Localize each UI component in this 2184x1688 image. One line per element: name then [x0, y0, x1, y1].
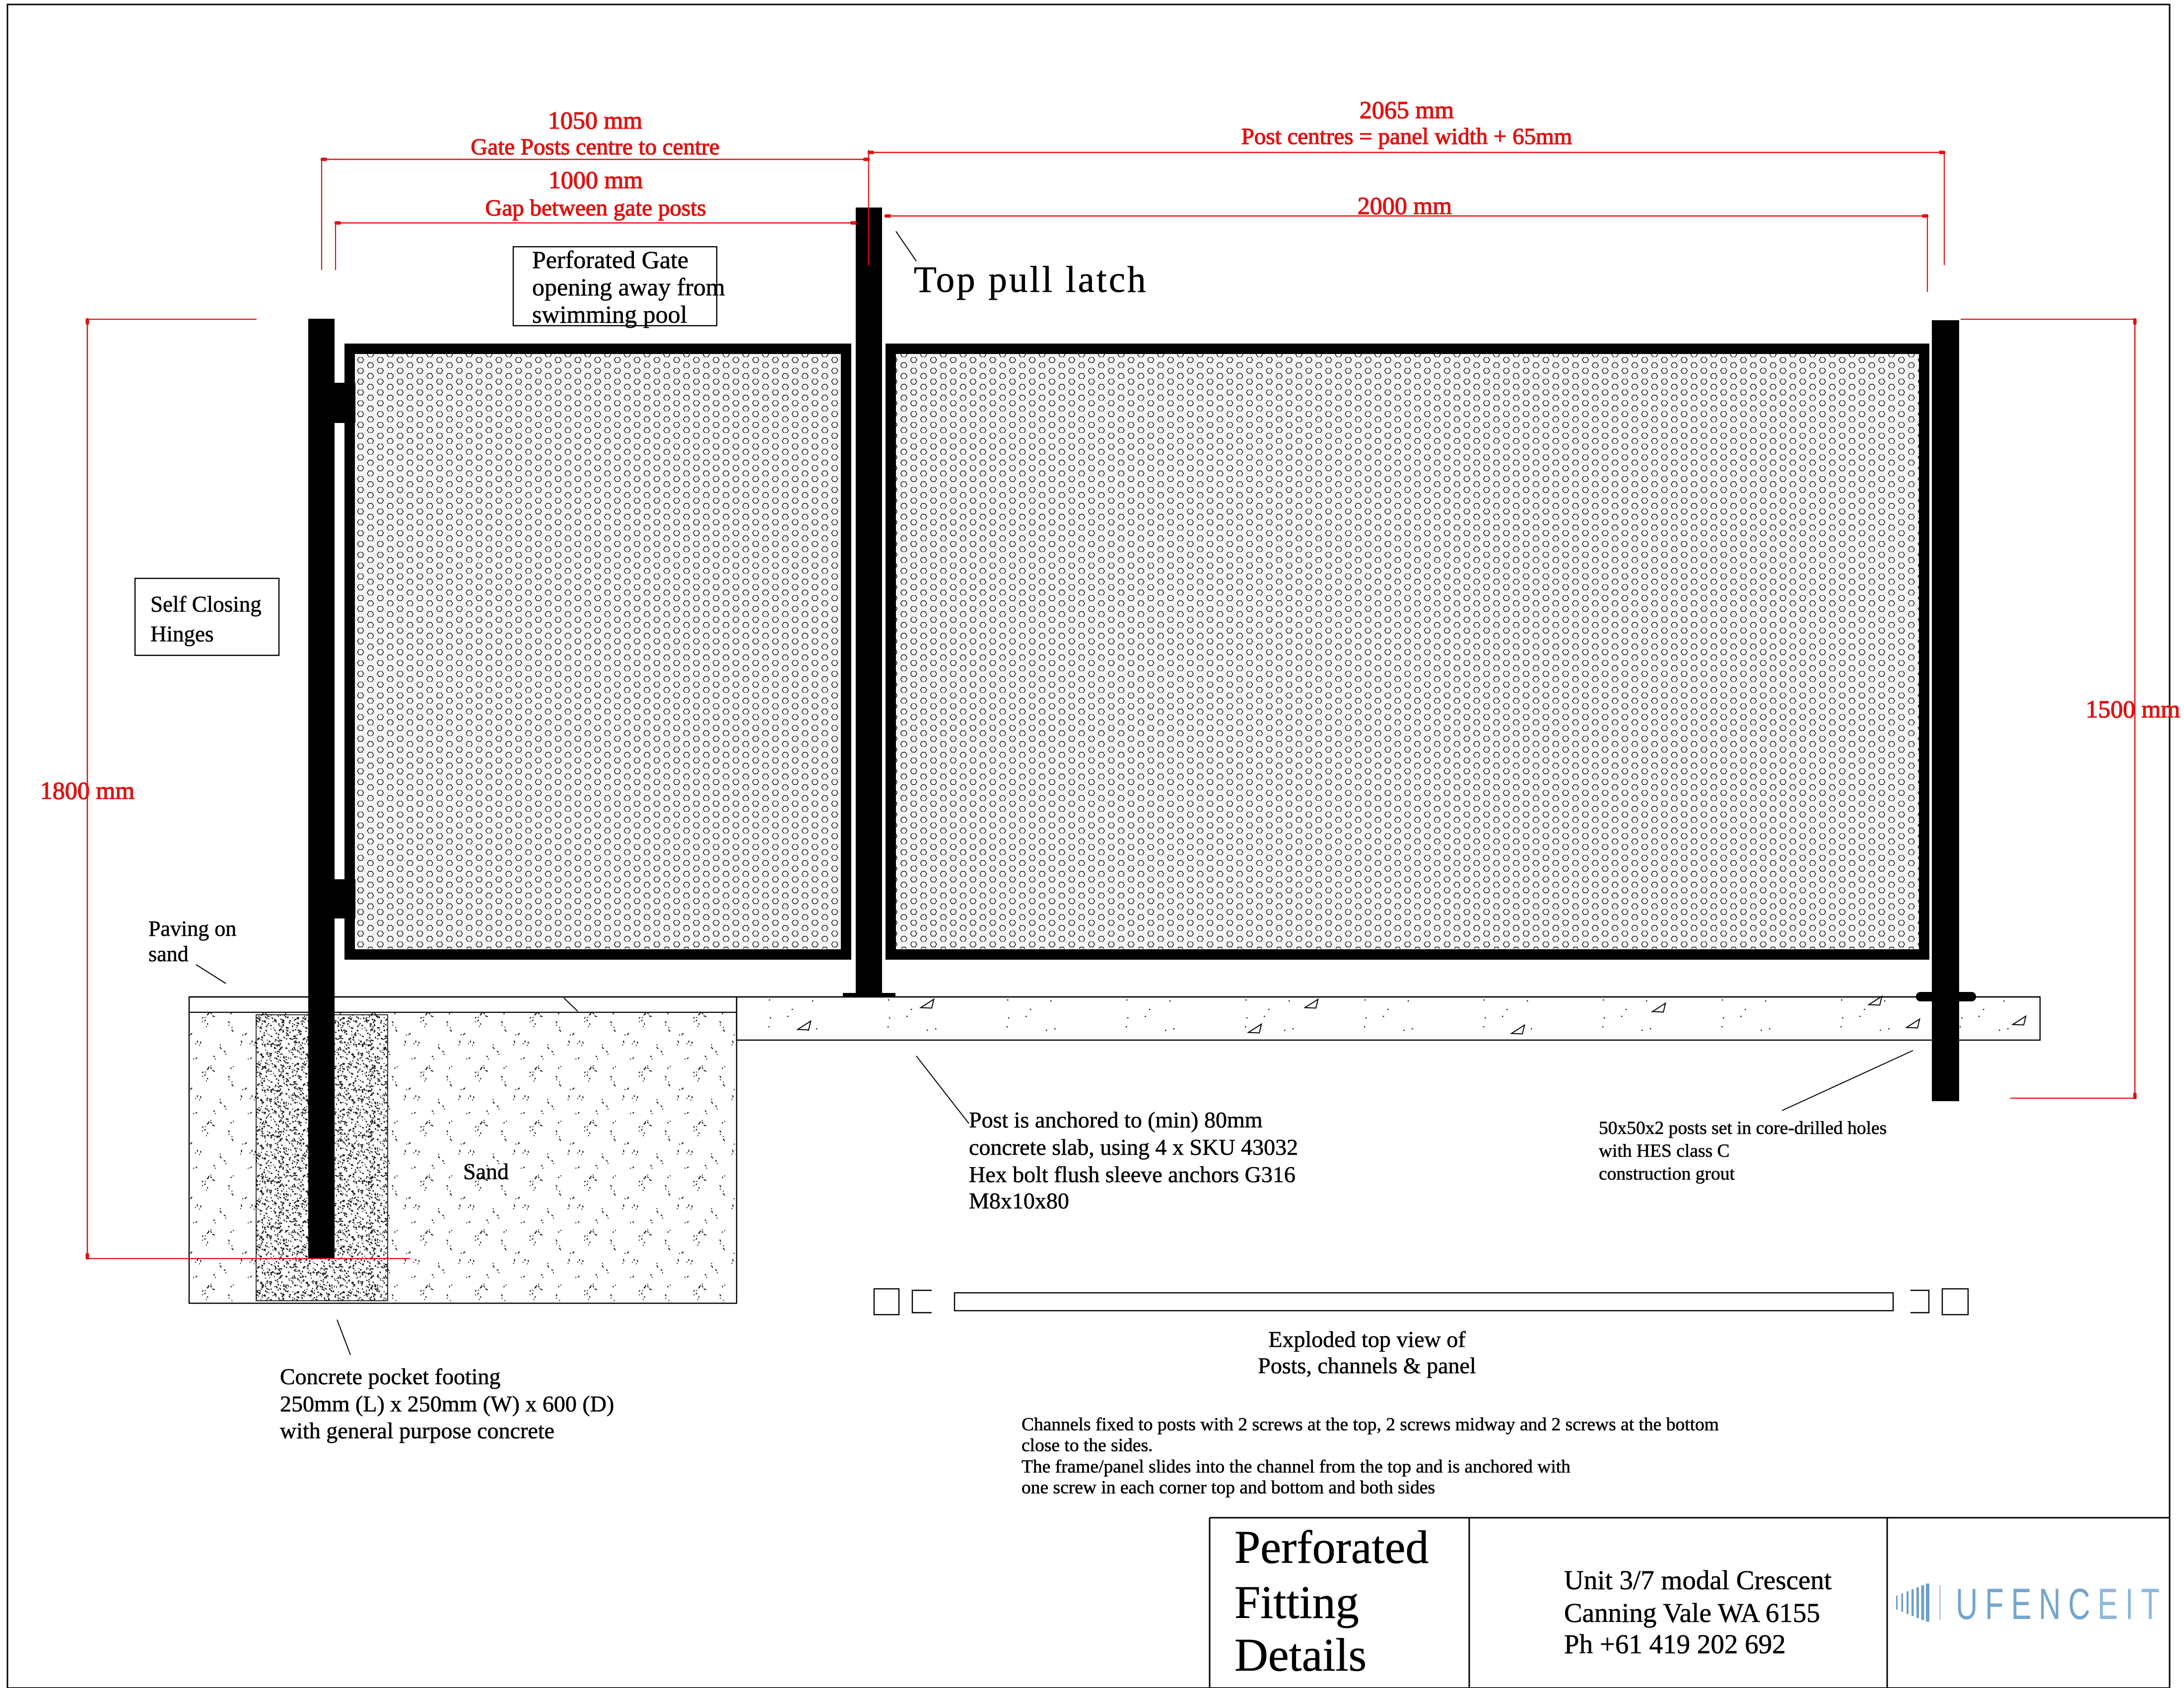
svg-text:2065 mm: 2065 mm — [1360, 96, 1454, 124]
svg-text:Exploded top view of: Exploded top view of — [1268, 1327, 1466, 1352]
svg-text:Concrete pocket footing: Concrete pocket footing — [280, 1364, 501, 1389]
svg-text:2000 mm: 2000 mm — [1358, 192, 1452, 219]
svg-text:50x50x2 posts set in core-dril: 50x50x2 posts set in core-drilled holes — [1599, 1118, 1887, 1138]
svg-text:Hex bolt flush sleeve anchors: Hex bolt flush sleeve anchors G316 — [969, 1162, 1296, 1187]
svg-text:Sand: Sand — [463, 1159, 509, 1184]
svg-text:Hinges: Hinges — [150, 622, 214, 646]
svg-text:one screw in each corner top a: one screw in each corner top and bottom … — [1022, 1477, 1435, 1498]
svg-text:Top pull latch: Top pull latch — [914, 259, 1148, 300]
svg-text:Gate Posts centre to centre: Gate Posts centre to centre — [471, 134, 719, 160]
svg-text:Post is anchored to (min) 80mm: Post is anchored to (min) 80mm — [969, 1107, 1263, 1132]
svg-text:Paving on: Paving on — [148, 916, 236, 941]
svg-text:Perforated Gate: Perforated Gate — [532, 246, 688, 274]
svg-text:1500 mm: 1500 mm — [2086, 695, 2180, 723]
svg-text:Fitting: Fitting — [1234, 1577, 1359, 1628]
svg-text:concrete slab, using 4 x SKU 4: concrete slab, using 4 x SKU 43032 — [969, 1134, 1298, 1160]
svg-text:with HES class C: with HES class C — [1599, 1141, 1730, 1161]
svg-text:Channels fixed to posts with 2: Channels fixed to posts with 2 screws at… — [1022, 1414, 1719, 1435]
svg-text:M8x10x80: M8x10x80 — [969, 1188, 1069, 1213]
svg-text:opening away from: opening away from — [532, 273, 725, 301]
svg-text:Posts, channels & panel: Posts, channels & panel — [1258, 1353, 1476, 1378]
svg-text:Ph +61 419 202 692: Ph +61 419 202 692 — [1564, 1629, 1786, 1659]
svg-text:250mm (L) x 250mm (W) x 600 (D: 250mm (L) x 250mm (W) x 600 (D) — [280, 1391, 614, 1416]
svg-text:1800 mm: 1800 mm — [40, 776, 135, 804]
svg-text:construction grout: construction grout — [1599, 1164, 1735, 1184]
svg-text:Post centres = panel width + 6: Post centres = panel width + 65mm — [1241, 124, 1572, 149]
svg-text:Unit 3/7 modal Crescent: Unit 3/7 modal Crescent — [1564, 1565, 1832, 1595]
svg-text:Details: Details — [1234, 1629, 1366, 1681]
svg-text:sand: sand — [148, 942, 189, 966]
svg-text:1000 mm: 1000 mm — [548, 166, 643, 194]
svg-text:UFENCEIT: UFENCEIT — [1956, 1580, 2167, 1628]
svg-text:Gap between gate posts: Gap between gate posts — [485, 195, 706, 221]
svg-text:with general purpose concrete: with general purpose concrete — [280, 1418, 554, 1443]
svg-text:swimming pool: swimming pool — [532, 300, 687, 328]
svg-text:Perforated: Perforated — [1234, 1522, 1429, 1573]
svg-text:Self Closing: Self Closing — [150, 592, 262, 617]
svg-text:close to the sides.: close to the sides. — [1022, 1435, 1153, 1456]
svg-text:The frame/panel slides into th: The frame/panel slides into the channel … — [1022, 1457, 1570, 1477]
svg-text:Canning Vale WA 6155: Canning Vale WA 6155 — [1564, 1598, 1820, 1628]
svg-text:1050 mm: 1050 mm — [548, 106, 642, 134]
